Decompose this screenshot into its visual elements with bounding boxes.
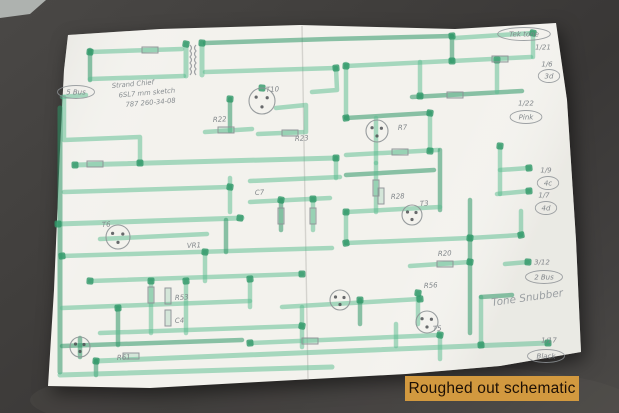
- trace-junction-blob: [525, 187, 532, 194]
- trace-junction-blob: [54, 220, 61, 227]
- trace-junction-blob: [332, 64, 340, 72]
- component-label: T3: [420, 200, 429, 208]
- tube-pin-dot: [82, 343, 85, 346]
- component-label: R56: [424, 281, 439, 290]
- caption-bar: Roughed out schematic: [405, 376, 579, 401]
- trace-junction-blob: [198, 39, 205, 46]
- component-label: VR1: [187, 241, 202, 250]
- component-rect: [302, 338, 318, 344]
- schematic-trace: [90, 49, 182, 52]
- edge-annotation: 4c: [544, 180, 552, 188]
- component-rect: [373, 180, 379, 196]
- edge-annotation: 3/12: [534, 259, 550, 267]
- tube-pin-dot: [370, 126, 373, 129]
- tube-pin-dot: [116, 241, 119, 244]
- trace-junction-blob: [426, 109, 434, 117]
- trace-junction-blob: [246, 339, 254, 347]
- tube-pin-dot: [74, 342, 77, 345]
- component-label: R61: [117, 353, 131, 362]
- trace-junction-blob: [524, 258, 531, 265]
- edge-annotation: 1/21: [535, 44, 551, 52]
- component-rect: [492, 56, 508, 62]
- trace-junction-blob: [342, 114, 350, 122]
- tube-pin-dot: [430, 318, 433, 321]
- tube-pin-dot: [255, 96, 258, 99]
- trace-junction-blob: [426, 147, 433, 154]
- trace-junction-blob: [466, 258, 474, 266]
- component-label: R20: [438, 249, 453, 258]
- component-label: R23: [295, 134, 309, 143]
- caption-text: Roughed out schematic: [408, 380, 575, 398]
- trace-junction-blob: [342, 239, 350, 247]
- edge-annotation: 1/17: [541, 337, 557, 345]
- tube-pin-dot: [78, 350, 81, 353]
- edge-annotation: Tek tone: [509, 31, 539, 39]
- trace-junction-blob: [71, 161, 78, 168]
- trace-junction-blob: [86, 277, 93, 284]
- trace-junction-blob: [342, 62, 349, 69]
- tube-pin-dot: [425, 325, 428, 328]
- edge-annotation: 1/9: [540, 167, 552, 175]
- tube-pin-dot: [406, 210, 409, 213]
- schematic-trace: [497, 191, 529, 194]
- tube-pin-dot: [420, 317, 423, 320]
- trace-junction-blob: [342, 208, 349, 215]
- trace-junction-blob: [86, 48, 94, 56]
- trace-junction-blob: [356, 296, 363, 303]
- component-rect: [392, 149, 408, 155]
- edge-annotation: 2 Bus: [534, 274, 554, 282]
- trace-junction-blob: [246, 275, 254, 283]
- trace-junction-blob: [201, 248, 209, 256]
- tube-pin-dot: [338, 303, 341, 306]
- trace-junction-blob: [277, 196, 285, 204]
- component-label: R28: [391, 192, 406, 201]
- tube-pin-dot: [111, 232, 114, 235]
- component-label: R22: [213, 115, 228, 124]
- tube-pin-dot: [414, 211, 417, 214]
- tube-pin-dot: [410, 218, 413, 221]
- tube-pin-dot: [375, 134, 378, 137]
- trace-junction-blob: [477, 341, 484, 348]
- trace-junction-blob: [92, 357, 100, 365]
- component-rect: [142, 47, 158, 53]
- tube-pin-dot: [121, 232, 124, 235]
- component-rect: [310, 208, 316, 224]
- edge-annotation: 4d: [542, 205, 551, 213]
- component-label: R7: [398, 123, 408, 132]
- trace-junction-blob: [136, 159, 143, 166]
- component-label: C7: [255, 188, 265, 197]
- trace-junction-blob: [298, 322, 306, 330]
- tube-pin-dot: [334, 295, 337, 298]
- tube-pin-dot: [260, 105, 263, 108]
- edge-annotation: 1/7: [538, 192, 550, 200]
- tube-pin-dot: [342, 296, 345, 299]
- trace-junction-blob: [309, 195, 316, 202]
- tube-pin-dot: [380, 127, 383, 130]
- component-label: T6: [102, 221, 112, 229]
- trace-junction-blob: [448, 32, 456, 40]
- trace-junction-blob: [114, 304, 121, 311]
- edge-annotation: Pink: [519, 114, 535, 122]
- component-rect: [148, 287, 154, 303]
- component-label: R53: [175, 293, 189, 302]
- edge-annotation: 1/6: [541, 61, 553, 69]
- component-label: T5: [433, 325, 443, 333]
- photo-of-schematic: T10R22R23R7R28R20R56T5T6R53C4R61T3VR1C7T…: [0, 0, 619, 413]
- trace-junction-blob: [332, 154, 339, 161]
- schematic-trace: [500, 168, 529, 170]
- trace-junction-blob: [182, 40, 190, 48]
- trace-junction-blob: [298, 270, 305, 277]
- trace-junction-blob: [416, 295, 424, 303]
- component-rect: [218, 127, 234, 133]
- component-rect: [447, 92, 463, 98]
- component-rect: [278, 208, 284, 224]
- tube-pin-dot: [266, 96, 269, 99]
- trace-junction-blob: [226, 183, 234, 191]
- edge-annotation: 5 Bus: [66, 89, 86, 97]
- component-label: T10: [266, 85, 280, 94]
- edge-annotation: 1/22: [518, 100, 534, 108]
- schematic-trace: [90, 76, 184, 79]
- edge-annotation: 3d: [545, 73, 554, 81]
- component-rect: [165, 288, 171, 304]
- trace-junction-blob: [147, 277, 154, 284]
- component-label: C4: [175, 317, 185, 325]
- tabletop-highlight: [0, 0, 46, 18]
- component-rect: [437, 261, 453, 267]
- trace-junction-blob: [58, 252, 66, 260]
- trace-junction-blob: [416, 92, 423, 99]
- trace-junction-blob: [448, 57, 455, 64]
- trace-junction-blob: [517, 231, 525, 239]
- trace-junction-blob: [466, 234, 474, 242]
- trace-junction-blob: [496, 142, 504, 150]
- trace-junction-blob: [236, 214, 244, 222]
- component-rect: [87, 161, 103, 167]
- trace-junction-blob: [525, 164, 533, 172]
- trace-junction-blob: [226, 95, 233, 102]
- trace-junction-blob: [182, 277, 190, 285]
- component-rect: [165, 310, 171, 326]
- edge-annotation: Black: [537, 353, 557, 361]
- schematic-photo-scene: T10R22R23R7R28R20R56T5T6R53C4R61T3VR1C7T…: [0, 0, 619, 413]
